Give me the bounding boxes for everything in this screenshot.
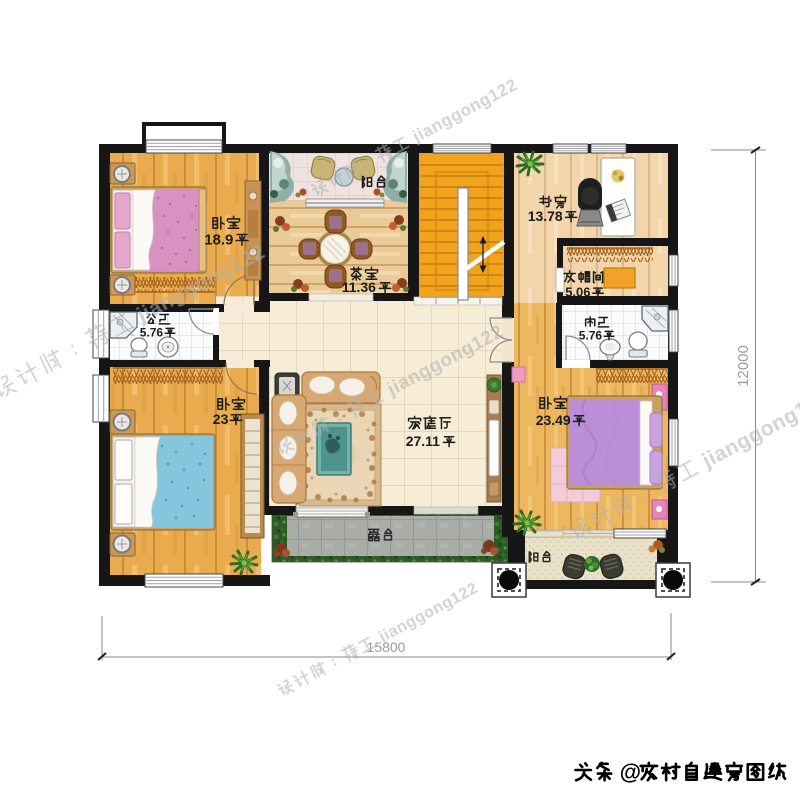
svg-text:11.36: 11.36 <box>342 279 376 295</box>
svg-text:@: @ <box>620 759 641 784</box>
svg-text:13.78: 13.78 <box>528 208 563 224</box>
svg-text:5.06: 5.06 <box>565 285 590 300</box>
svg-text:27.11: 27.11 <box>406 433 440 449</box>
svg-text:5.76: 5.76 <box>140 325 164 339</box>
svg-text:23.49: 23.49 <box>536 412 571 428</box>
svg-text:12000: 12000 <box>735 345 752 387</box>
svg-text:5.76: 5.76 <box>579 328 603 342</box>
svg-text:23: 23 <box>213 411 229 427</box>
svg-text:18.9: 18.9 <box>204 231 233 248</box>
